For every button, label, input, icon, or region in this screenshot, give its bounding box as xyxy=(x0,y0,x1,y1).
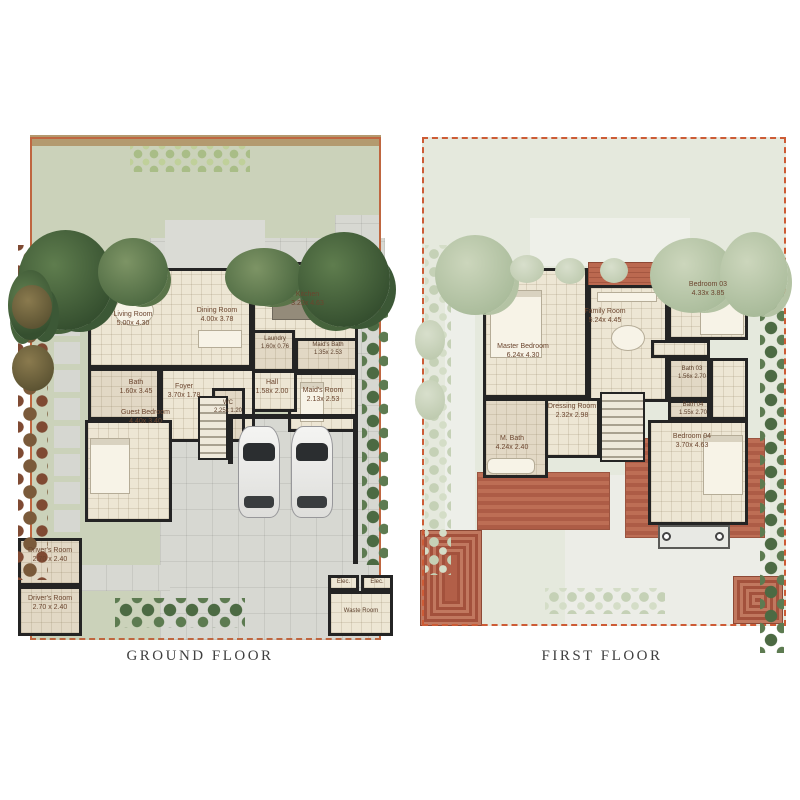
car xyxy=(291,426,333,518)
tree xyxy=(298,232,390,327)
floor-plan-sheet: Living Room5.00x 4.30 Dining Room4.00x 3… xyxy=(0,0,800,800)
tree-faded xyxy=(510,255,544,283)
hedge xyxy=(130,146,250,172)
first-floor-plan: Master Bedroom6.24x 4.30 Family Room5.24… xyxy=(415,120,795,645)
room-label-kitchen: Kitchen3.23x 4.63 xyxy=(265,290,350,308)
boundary-wall xyxy=(30,135,381,146)
roof-terrace xyxy=(477,472,610,530)
room-label-driver1: Driver's Room2.70 x 2.40 xyxy=(22,546,78,564)
ground-floor-plan: Living Room5.00x 4.30 Dining Room4.00x 3… xyxy=(10,120,395,645)
ground-floor-caption: GROUND FLOOR xyxy=(60,648,340,665)
tree-faded xyxy=(415,320,445,360)
hedge xyxy=(760,268,784,653)
room-label-wc: WC2.25x 1.20 xyxy=(208,400,248,416)
wardrobe xyxy=(651,340,710,358)
tree xyxy=(12,345,54,391)
room-label-elec1: Elec. xyxy=(328,579,359,587)
garage-wall xyxy=(228,414,233,464)
car xyxy=(238,426,280,518)
room-label-mbath: M. Bath4.24x 2.40 xyxy=(487,434,537,452)
room-label-bedroom04: Bedroom 043.70x 4.63 xyxy=(662,432,722,450)
room-label-maids-bath: Maid's Bath1.35x 2.53 xyxy=(298,342,358,358)
room-label-guest: Guest Bedroom4.40x 3.40 xyxy=(118,408,173,426)
room-label-bath03: Bath 031.56x 2.70 xyxy=(670,366,714,382)
room-label-family: Family Room5.24x 4.45 xyxy=(577,307,633,325)
rug xyxy=(611,325,645,351)
garage-wall xyxy=(353,414,358,564)
closet-shaft xyxy=(710,358,748,420)
room-label-hall: Hall1.58x 2.00 xyxy=(247,378,297,396)
tree-faded xyxy=(600,258,628,283)
tree xyxy=(98,238,168,306)
room-label-living: Living Room5.00x 4.30 xyxy=(93,310,173,328)
balcony-column xyxy=(662,532,671,541)
tree-faded xyxy=(720,232,788,317)
room-label-master: Master Bedroom6.24x 4.30 xyxy=(485,342,561,360)
room-label-laundry: Laundry1.60x 0.76 xyxy=(250,336,300,352)
dining-table xyxy=(198,330,242,348)
room-label-foyer: Foyer3.70x 1.78 xyxy=(158,382,210,400)
bathtub xyxy=(487,458,535,474)
room-label-maids-room: Maid's Room2.13x 2.53 xyxy=(291,386,355,404)
room-label-waste: Waste Room xyxy=(330,608,392,616)
staircase xyxy=(600,392,645,462)
hedge xyxy=(115,598,245,628)
room-label-dressing: Dressing Room2.32x 2.98 xyxy=(539,402,605,420)
pavement xyxy=(80,565,170,591)
room-label-bedroom03: Bedroom 034.33x 3.85 xyxy=(677,280,739,298)
hedge-faded xyxy=(545,588,665,614)
room-label-driver2: Driver's Room2.70 x 2.40 xyxy=(22,594,78,612)
room-label-bath04: Bath 041.55x 2.70 xyxy=(671,402,715,418)
balcony-column xyxy=(715,532,724,541)
first-floor-caption: FIRST FLOOR xyxy=(472,648,732,665)
tree-faded xyxy=(435,235,515,315)
tree-faded xyxy=(415,380,445,420)
sofa xyxy=(597,292,657,302)
room-label-dining: Dining Room4.00x 3.78 xyxy=(182,306,252,324)
room-label-elec2: Elec. xyxy=(361,579,393,587)
room-label-bath: Bath1.60x 3.45 xyxy=(112,378,160,396)
bed xyxy=(90,438,130,494)
tree-faded xyxy=(555,258,585,284)
tree xyxy=(12,285,52,329)
